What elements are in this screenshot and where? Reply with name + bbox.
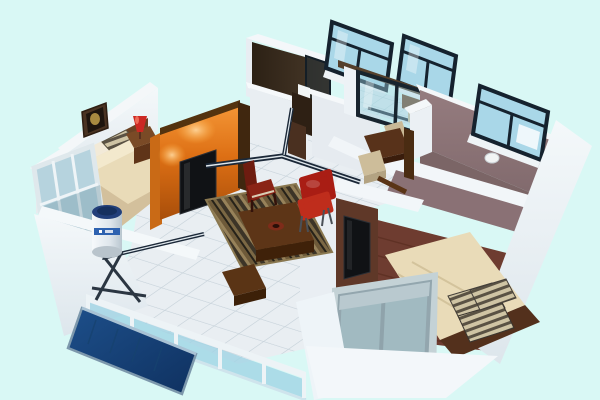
floorplan-render <box>0 0 600 400</box>
post <box>262 360 266 384</box>
wall-lamp <box>485 153 499 163</box>
tank-bottom <box>92 246 122 258</box>
lamp-highlight <box>135 116 139 124</box>
tv-gloss <box>347 220 352 270</box>
label-text-mark <box>99 230 102 233</box>
picture-glow <box>90 113 100 125</box>
door-divider <box>395 84 397 127</box>
label-text-mark <box>105 230 113 233</box>
tv-gloss <box>184 162 190 210</box>
floorplan-svg <box>0 0 600 400</box>
post <box>218 345 222 369</box>
wall-face <box>344 66 358 118</box>
decor-bowl-inner <box>273 224 280 228</box>
door-frame-post <box>404 128 414 180</box>
tank-cap-inner <box>97 207 117 216</box>
post <box>302 374 306 398</box>
chair-highlight <box>306 180 320 188</box>
